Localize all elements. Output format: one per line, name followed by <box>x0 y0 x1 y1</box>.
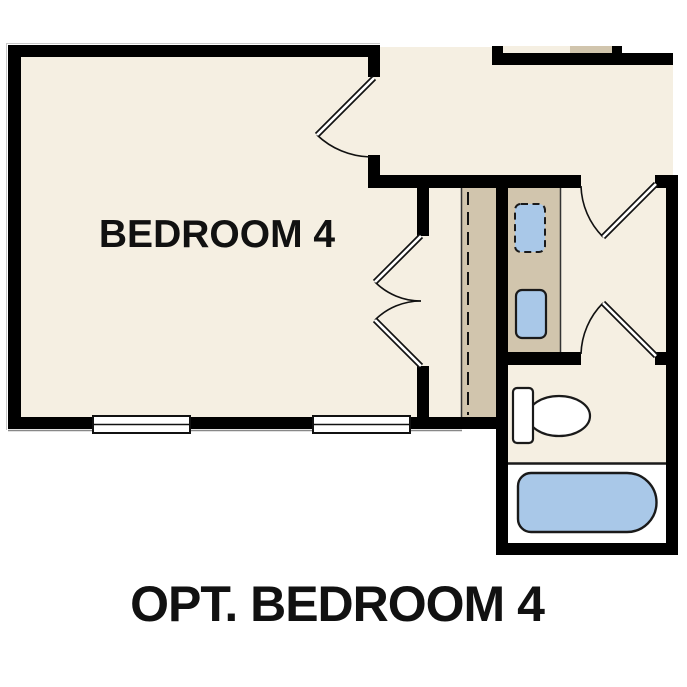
wall-segment <box>496 352 581 365</box>
wall-segment <box>368 175 581 188</box>
wall-segment <box>666 175 678 555</box>
floor-plan-canvas: BEDROOM 4 OPT. BEDROOM 4 <box>0 0 687 687</box>
plan-caption: OPT. BEDROOM 4 <box>130 576 545 632</box>
bedroom-label: BEDROOM 4 <box>99 213 336 256</box>
wall-segment <box>8 417 498 429</box>
bathtub-icon <box>518 473 657 532</box>
wall-segment <box>612 46 622 54</box>
floor-areas <box>21 43 673 543</box>
wall-segment <box>8 45 21 429</box>
background-patch <box>620 43 673 53</box>
wall-segment <box>8 45 380 57</box>
top-opening-floor-strip <box>503 46 570 53</box>
wall-segment <box>417 366 429 417</box>
wall-segment <box>492 53 673 65</box>
wall-segment <box>368 45 380 77</box>
wall-segment <box>492 46 503 54</box>
cased-opening-top <box>570 46 612 53</box>
sink-icon <box>516 290 546 338</box>
sink-optional-icon <box>515 204 545 252</box>
wall-segment <box>496 543 678 555</box>
window <box>93 416 190 433</box>
window <box>313 416 410 433</box>
wall-segment <box>417 188 429 236</box>
floor-plan: BEDROOM 4 OPT. BEDROOM 4 <box>0 0 687 687</box>
